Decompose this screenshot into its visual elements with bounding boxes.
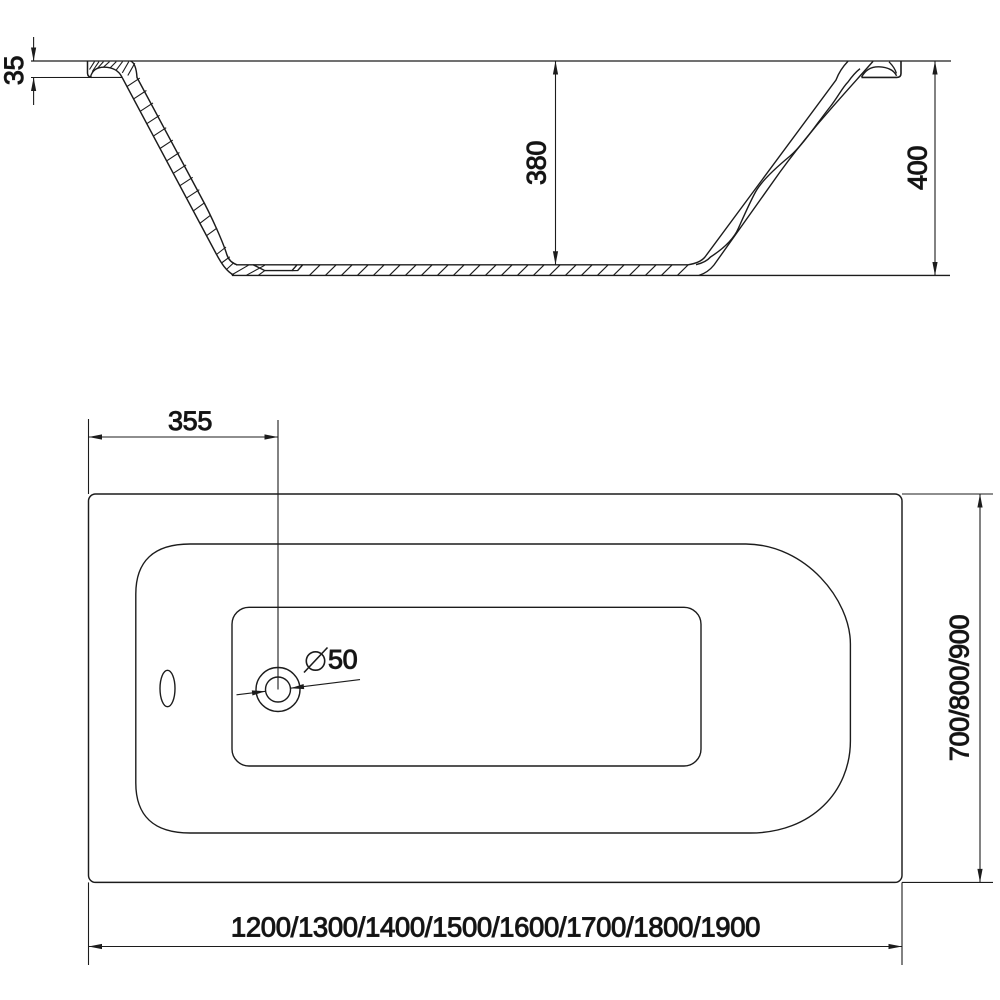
svg-text:35: 35 bbox=[0, 56, 29, 85]
svg-text:700/800/900: 700/800/900 bbox=[945, 615, 975, 761]
svg-text:1200/1300/1400/1500/1600/1700/: 1200/1300/1400/1500/1600/1700/1800/1900 bbox=[231, 912, 760, 943]
svg-text:50: 50 bbox=[328, 645, 357, 675]
svg-text:355: 355 bbox=[168, 406, 212, 436]
svg-text:380: 380 bbox=[522, 141, 552, 185]
svg-text:400: 400 bbox=[903, 146, 933, 190]
